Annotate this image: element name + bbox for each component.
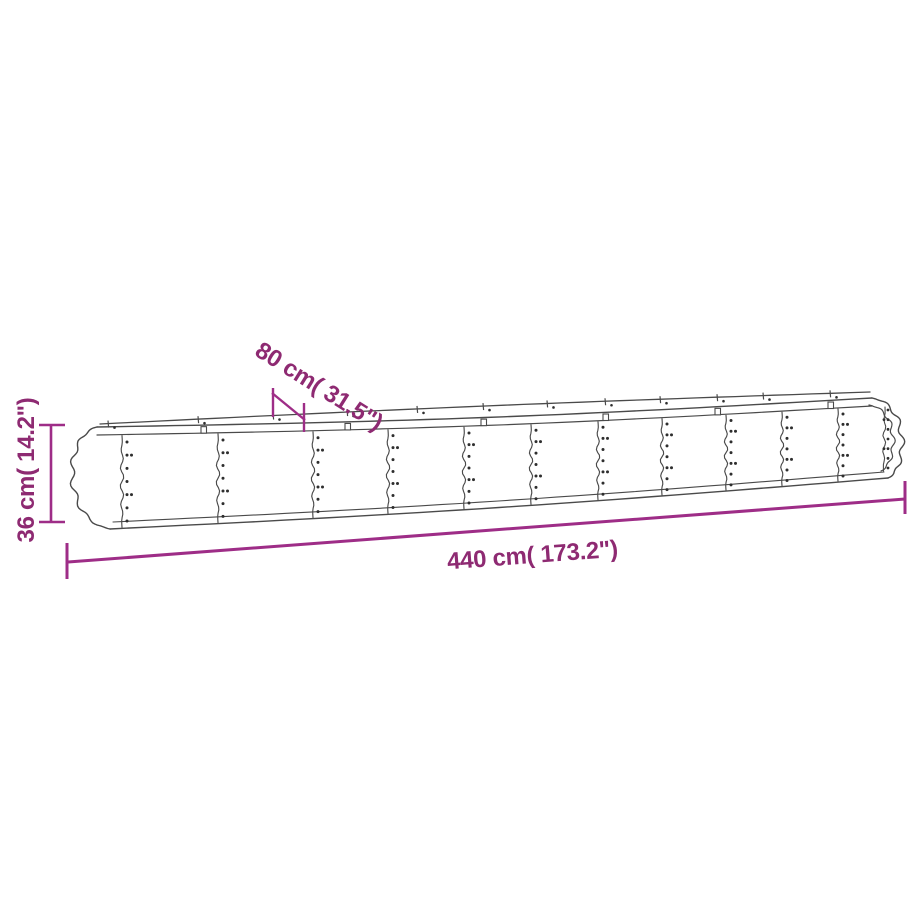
length-dimension: 440 cm( 173.2"): [67, 481, 905, 579]
width-dimension-label: 80 cm( 31.5"): [250, 337, 387, 437]
diagram-canvas: 36 cm( 14.2") 80 cm( 31.5") 440 cm( 173.…: [0, 0, 922, 922]
width-dimension: 80 cm( 31.5"): [250, 337, 387, 437]
product-dimension-diagram: 36 cm( 14.2") 80 cm( 31.5") 440 cm( 173.…: [0, 0, 922, 922]
length-dimension-label: 440 cm( 173.2"): [446, 536, 619, 576]
height-dimension-label: 36 cm( 14.2"): [13, 398, 40, 543]
height-dimension: 36 cm( 14.2"): [13, 398, 65, 543]
